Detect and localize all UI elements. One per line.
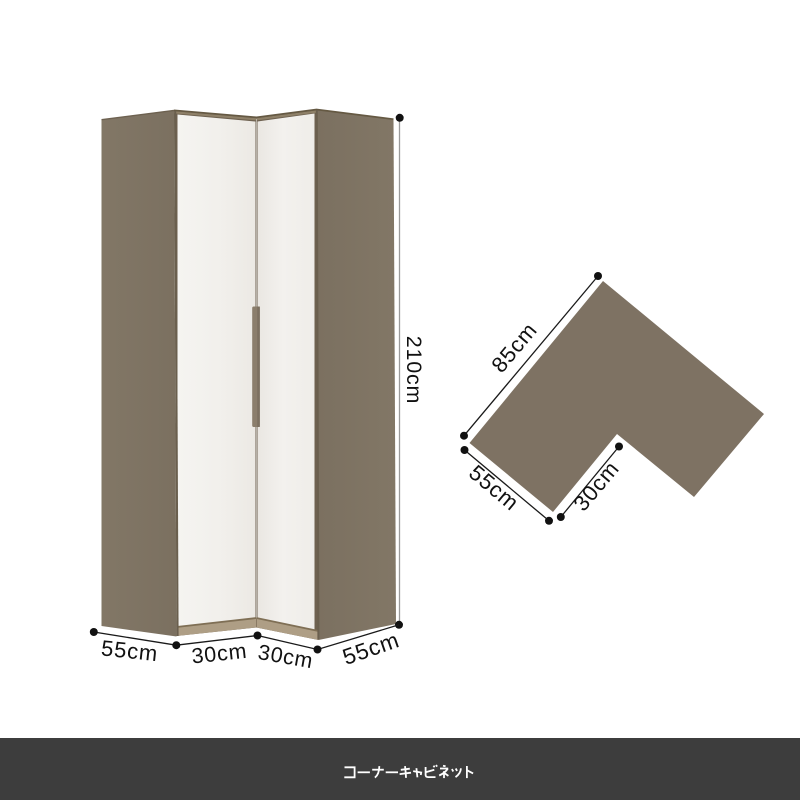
svg-text:210cm: 210cm bbox=[402, 336, 426, 405]
